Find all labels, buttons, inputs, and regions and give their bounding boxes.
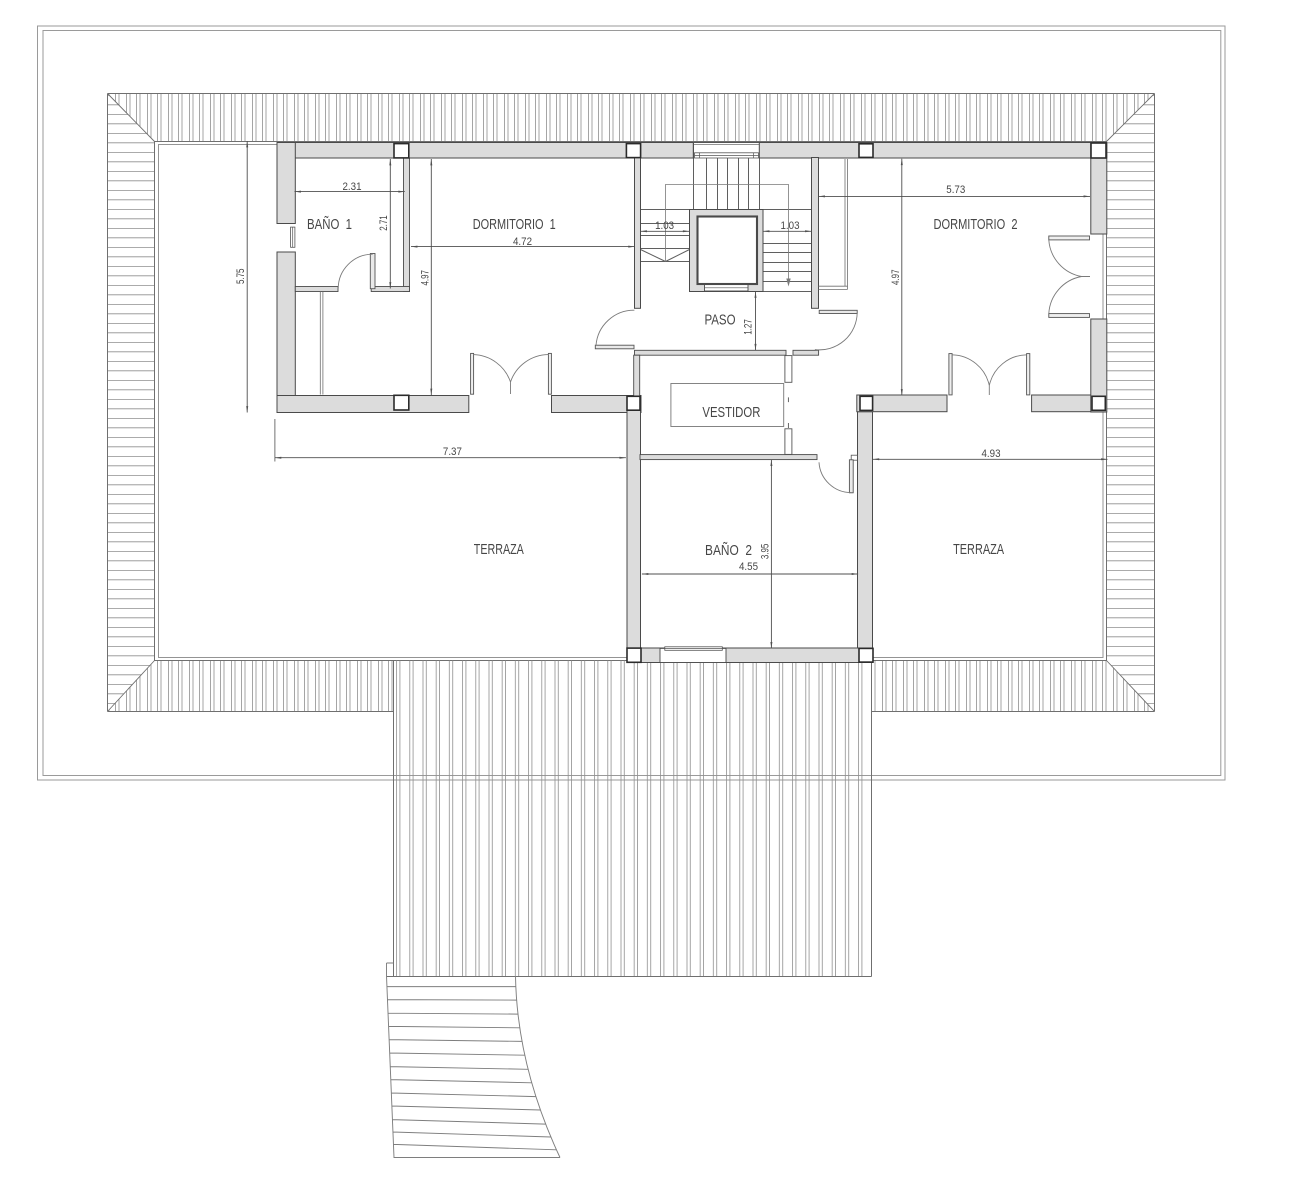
svg-text:4.97: 4.97 (890, 269, 902, 285)
svg-text:4.55: 4.55 (739, 561, 758, 573)
svg-text:1.03: 1.03 (781, 220, 800, 232)
svg-text:1.03: 1.03 (655, 220, 674, 232)
svg-text:DORMITORIO 1: DORMITORIO 1 (473, 216, 556, 233)
svg-text:TERRAZA: TERRAZA (474, 541, 524, 558)
svg-text:BAÑO 1: BAÑO 1 (307, 216, 352, 233)
svg-text:DORMITORIO 2: DORMITORIO 2 (934, 216, 1018, 233)
svg-text:2.71: 2.71 (378, 215, 390, 231)
svg-text:5.73: 5.73 (946, 184, 965, 196)
svg-text:BAÑO 2: BAÑO 2 (705, 542, 752, 559)
svg-text:7.37: 7.37 (443, 446, 462, 458)
svg-text:1.27: 1.27 (742, 319, 754, 335)
svg-text:VESTIDOR: VESTIDOR (702, 404, 760, 421)
svg-text:PASO: PASO (705, 311, 736, 328)
svg-text:3.95: 3.95 (759, 544, 771, 560)
svg-text:4.72: 4.72 (513, 236, 532, 248)
svg-text:5.75: 5.75 (235, 269, 247, 285)
svg-text:2.31: 2.31 (343, 181, 362, 193)
svg-text:TERRAZA: TERRAZA (953, 541, 1004, 558)
svg-text:4.97: 4.97 (420, 270, 432, 286)
svg-text:4.93: 4.93 (982, 448, 1001, 460)
